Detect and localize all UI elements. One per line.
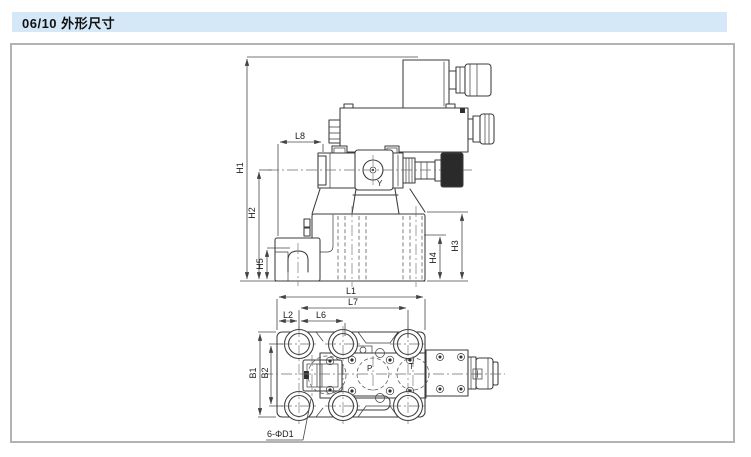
side-view-valve-body	[275, 60, 494, 281]
dim-label-l8: L8	[295, 131, 305, 141]
dim-label-b2: B2	[260, 367, 270, 378]
dim-label-h5: H5	[255, 258, 265, 270]
dim-label-l6: L6	[316, 310, 326, 320]
port-label-y: Y	[377, 179, 383, 188]
port-label-t: T	[409, 362, 414, 371]
dim-label-l1: L1	[346, 286, 356, 296]
holes-note-label: 6-ΦD1	[267, 429, 294, 439]
technical-drawing-svg: H1 H2 H5 H3 H4 L8 Y	[0, 0, 751, 457]
port-label-p: P	[367, 364, 372, 373]
connector-block	[403, 60, 449, 108]
top-view-drawing: L1 L7 L2 L6 B1 B2 P T 6-ΦD1	[248, 286, 505, 440]
solenoid-top-view	[426, 350, 498, 396]
main-body	[312, 214, 425, 281]
dim-label-l7: L7	[348, 297, 358, 307]
dim-label-h4: H4	[428, 252, 438, 264]
cable-gland-lower	[468, 114, 494, 144]
top-view-valve-body	[277, 330, 498, 421]
adjustment-knob	[441, 153, 463, 187]
screw-head	[460, 108, 465, 113]
dim-label-h1: H1	[235, 162, 245, 174]
side-block	[275, 238, 320, 281]
dim-label-b1: B1	[248, 367, 258, 378]
coil-nut	[329, 120, 340, 143]
datasheet-page: 06/10 外形尺寸	[0, 0, 751, 457]
connector-cap	[476, 358, 493, 389]
dim-label-h3: H3	[450, 240, 460, 252]
dim-label-h2: H2	[247, 207, 257, 219]
solenoid-coil	[340, 108, 468, 152]
side-view-drawing: H1 H2 H5 H3 H4 L8 Y	[235, 57, 494, 287]
cable-gland-upper	[449, 64, 491, 96]
dim-label-l2: L2	[283, 310, 293, 320]
